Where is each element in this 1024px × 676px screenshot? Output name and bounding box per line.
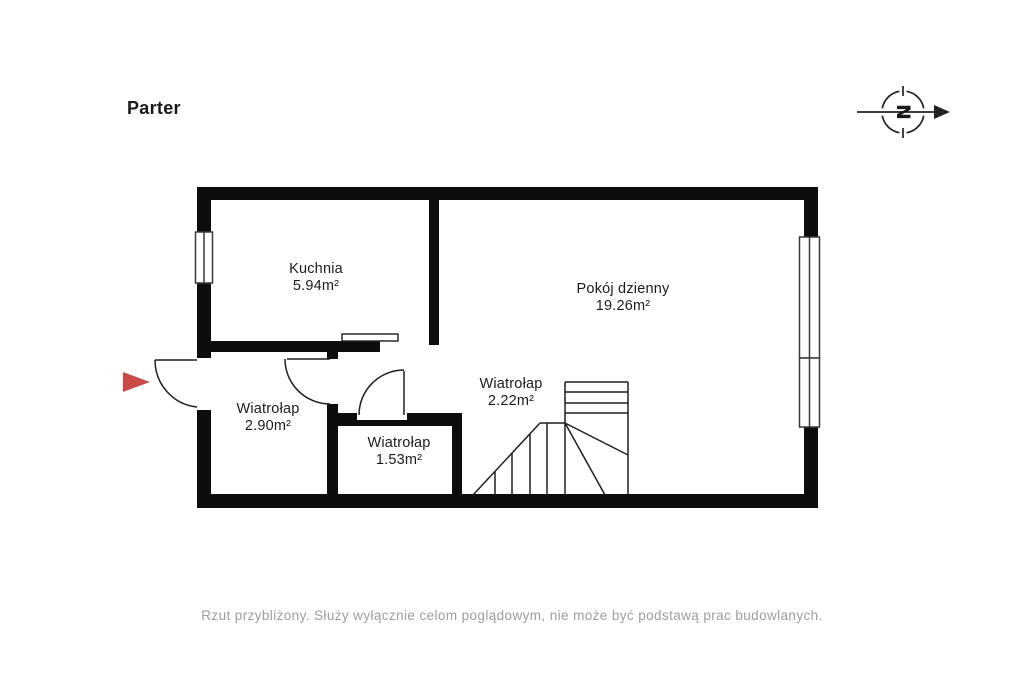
wall-right-lower bbox=[804, 427, 818, 508]
wall-bottom bbox=[197, 494, 818, 508]
entry-door-arc bbox=[155, 360, 197, 407]
stairs-upper-treads bbox=[565, 392, 628, 413]
wall-w153-top-left bbox=[332, 413, 357, 426]
room-label-wiatrolap-222: Wiatrołap 2.22m² bbox=[479, 376, 542, 410]
stairs-winder-treads bbox=[565, 423, 628, 495]
room-name: Wiatrołap bbox=[479, 376, 542, 392]
room-name: Pokój dzienny bbox=[577, 281, 670, 297]
room-area: 2.90m² bbox=[236, 418, 299, 435]
room-name: Wiatrołap bbox=[367, 435, 430, 451]
room-label-wiatrolap-290: Wiatrołap 2.90m² bbox=[236, 401, 299, 435]
hall-door-arc bbox=[285, 359, 330, 404]
floor-plan-page: Parter N bbox=[0, 0, 1024, 676]
entry-arrow-icon bbox=[123, 372, 150, 392]
disclaimer-text: Rzut przybliżony. Służy wyłącznie celom … bbox=[0, 608, 1024, 623]
wall-left-lower bbox=[197, 410, 211, 508]
room-label-kuchnia: Kuchnia 5.94m² bbox=[289, 261, 343, 295]
wall-top bbox=[197, 187, 818, 200]
room-area: 1.53m² bbox=[367, 452, 430, 469]
wall-w153-right bbox=[452, 413, 462, 495]
room-area: 19.26m² bbox=[577, 298, 670, 315]
room-area: 5.94m² bbox=[289, 278, 343, 295]
room-label-pokoj-dzienny: Pokój dzienny 19.26m² bbox=[577, 281, 670, 315]
room-name: Kuchnia bbox=[289, 261, 343, 277]
room-label-wiatrolap-153: Wiatrołap 1.53m² bbox=[367, 435, 430, 469]
wall-w153-threshold bbox=[357, 420, 407, 426]
wall-kitchen-bottom bbox=[197, 341, 380, 352]
stairs-lower-treads bbox=[495, 423, 547, 495]
room-name: Wiatrołap bbox=[236, 401, 299, 417]
w153-door-arc bbox=[359, 370, 404, 415]
wall-kitchen-living-divider bbox=[429, 198, 439, 345]
kitchen-counter bbox=[342, 334, 398, 341]
wall-right-upper bbox=[804, 187, 818, 237]
room-area: 2.22m² bbox=[479, 393, 542, 410]
wall-hall-stub bbox=[327, 341, 338, 359]
floor-plan-drawing bbox=[0, 0, 1024, 676]
